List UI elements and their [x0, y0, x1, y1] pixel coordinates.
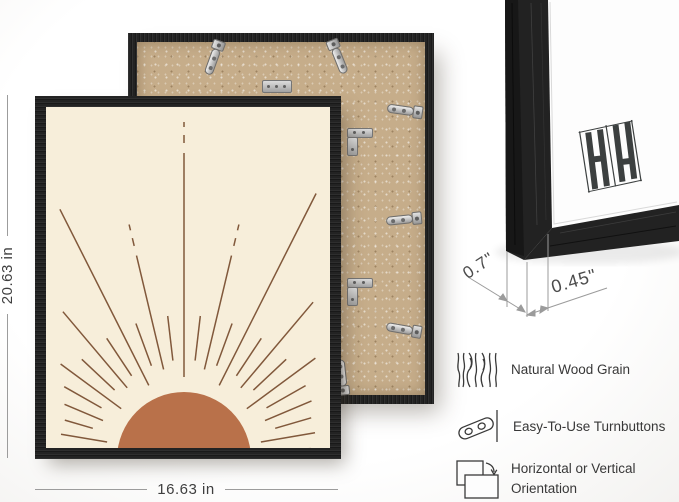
mat-surface: [548, 0, 679, 228]
frame-front-view: [35, 96, 341, 459]
sun-art-print: [46, 107, 330, 448]
feature-row-turnbuttons: Easy-To-Use Turnbuttons: [455, 408, 665, 446]
turnbutton-clip-icon: [385, 211, 422, 228]
product-infographic: 20.63 in 16.63 in: [0, 0, 679, 502]
wood-grain-icon: [455, 352, 501, 388]
feature-label: Natural Wood Grain: [511, 360, 630, 380]
hanger-bracket-icon: [347, 278, 373, 306]
orientation-icon: [455, 458, 501, 500]
width-dimension-label: 16.63 in: [157, 481, 214, 498]
turnbutton-clip-icon: [202, 38, 227, 76]
turnbutton-icon: [455, 408, 503, 446]
feature-label: Horizontal or Vertical Orientation: [511, 459, 671, 498]
height-dimension-label: 20.63 in: [0, 246, 17, 303]
turnbutton-clip-icon: [386, 102, 423, 120]
feature-row-orientation: Horizontal or Vertical Orientation: [455, 458, 671, 500]
hanger-bracket-icon: [347, 128, 373, 156]
turnbutton-clip-icon: [325, 37, 351, 75]
feature-label: Easy-To-Use Turnbuttons: [513, 417, 665, 437]
feature-row-wood-grain: Natural Wood Grain: [455, 352, 630, 388]
turnbutton-clip-icon: [385, 320, 423, 339]
hanger-bracket-icon: [262, 80, 292, 93]
